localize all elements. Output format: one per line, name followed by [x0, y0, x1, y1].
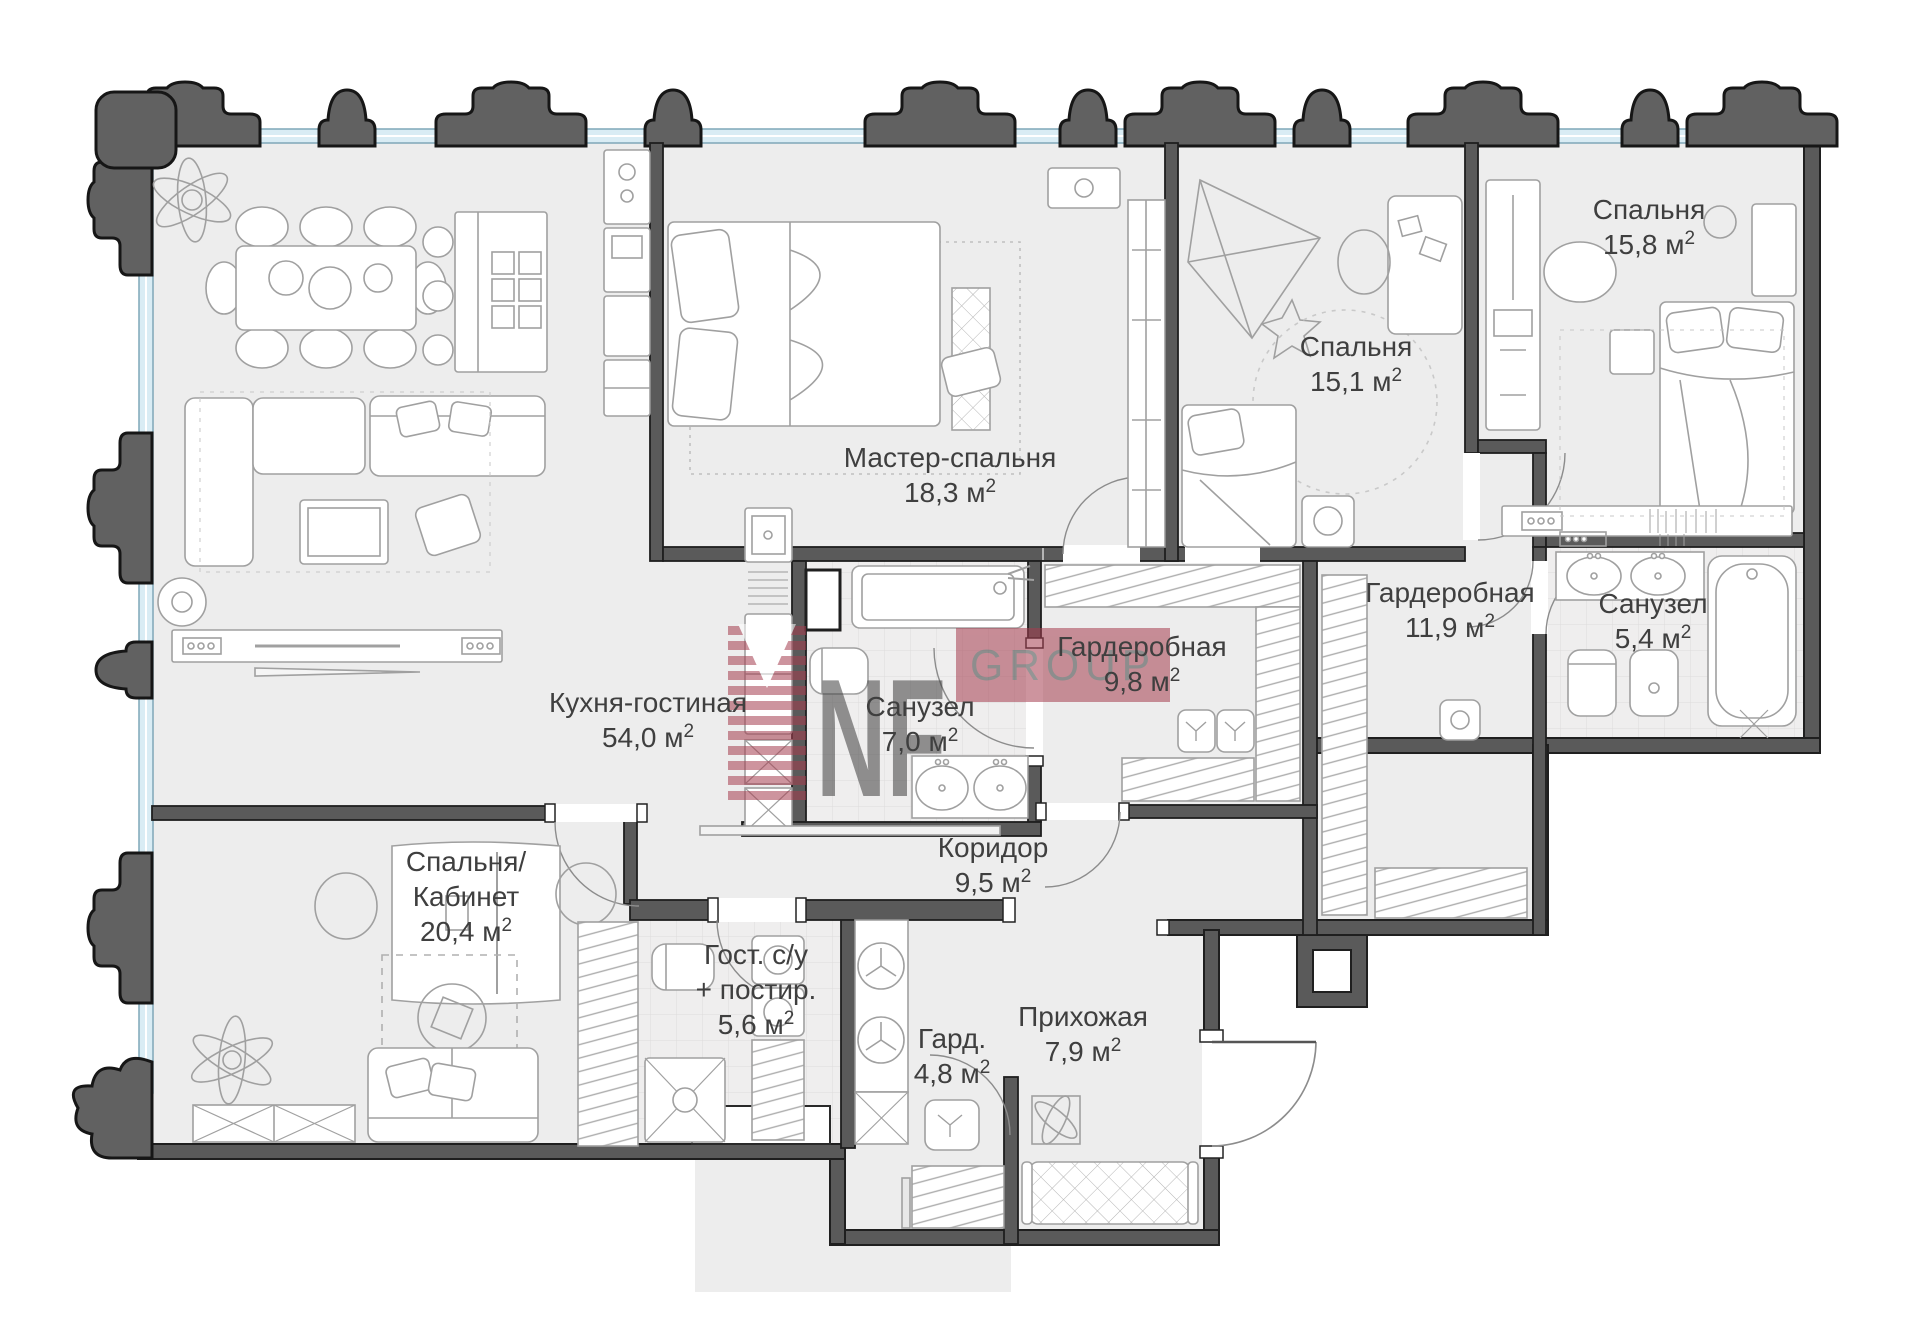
- floor-plan-page: NF GROUP Кухня-гостиная54,0 м2Мастер-спа…: [0, 0, 1920, 1328]
- wall-corridor-a: [630, 900, 717, 920]
- entrance-opening: [1202, 1041, 1221, 1146]
- master-desk-icon: [1048, 168, 1120, 208]
- column-icon: [96, 642, 152, 698]
- column-icon: [88, 853, 152, 1003]
- column-icon: [645, 90, 701, 146]
- floor-plan-drawing: NF GROUP Кухня-гостиная54,0 м2Мастер-спа…: [0, 0, 1920, 1328]
- dining-table-icon: [206, 207, 446, 368]
- wall-nook-top: [1478, 440, 1546, 453]
- column-icon: [436, 82, 586, 146]
- shaft-niche: [1313, 950, 1351, 992]
- column-icon: [88, 433, 152, 583]
- column-icon: [1294, 90, 1350, 146]
- entrance-door: [1200, 1030, 1316, 1158]
- vent-shaft: [855, 920, 908, 1144]
- wall-wardrobe98-bottom: [1120, 805, 1317, 818]
- wall-right: [1804, 128, 1820, 752]
- bedroom3-console-icon: [1502, 506, 1792, 536]
- bath70-niche: [806, 570, 840, 630]
- entrance-door-arc: [1212, 1042, 1316, 1146]
- wall-under-corridor: [1168, 920, 1548, 935]
- room-label-bedroom-office: Спальня/Кабинет20,4 м2: [406, 846, 527, 947]
- wall-office-corner: [624, 820, 637, 904]
- column-icon: [865, 82, 1015, 146]
- bathtub-icon: [852, 566, 1024, 628]
- wall-wardrobe98-right: [1303, 561, 1317, 935]
- wall-bath54-bottom: [1306, 738, 1820, 753]
- wall-bottom-hall: [830, 1230, 1219, 1245]
- column-icon: [1408, 82, 1558, 146]
- wall-office-top: [152, 806, 555, 820]
- wall-guestwc-right: [841, 920, 855, 1148]
- wall-bed2-bed3: [1465, 143, 1478, 453]
- column-icon: [1687, 82, 1837, 146]
- wall-gard-right: [1004, 1077, 1018, 1244]
- wall-kitchen-master: [650, 143, 663, 561]
- wall-bottom-left: [138, 1144, 845, 1159]
- wall-corridor-b: [797, 900, 1013, 920]
- bench-icon: [1030, 1162, 1190, 1224]
- column-icon: [1622, 90, 1678, 146]
- wall-master-bed2: [1165, 143, 1178, 561]
- bathtub-icon: [1708, 556, 1796, 726]
- corner-column-icon: [96, 92, 176, 168]
- toilet-icon: [1568, 650, 1616, 716]
- master-wardrobe-icon: [1128, 200, 1165, 547]
- column-icon: [1125, 82, 1275, 146]
- column-icon: [319, 90, 375, 146]
- corner-column-icon: [73, 1058, 152, 1158]
- office-wardrobe-icon: [578, 922, 638, 1146]
- bedroom3-dresser-icon: [1486, 180, 1540, 430]
- kitchen-island-icon: [423, 212, 547, 372]
- column-icon: [1060, 90, 1116, 146]
